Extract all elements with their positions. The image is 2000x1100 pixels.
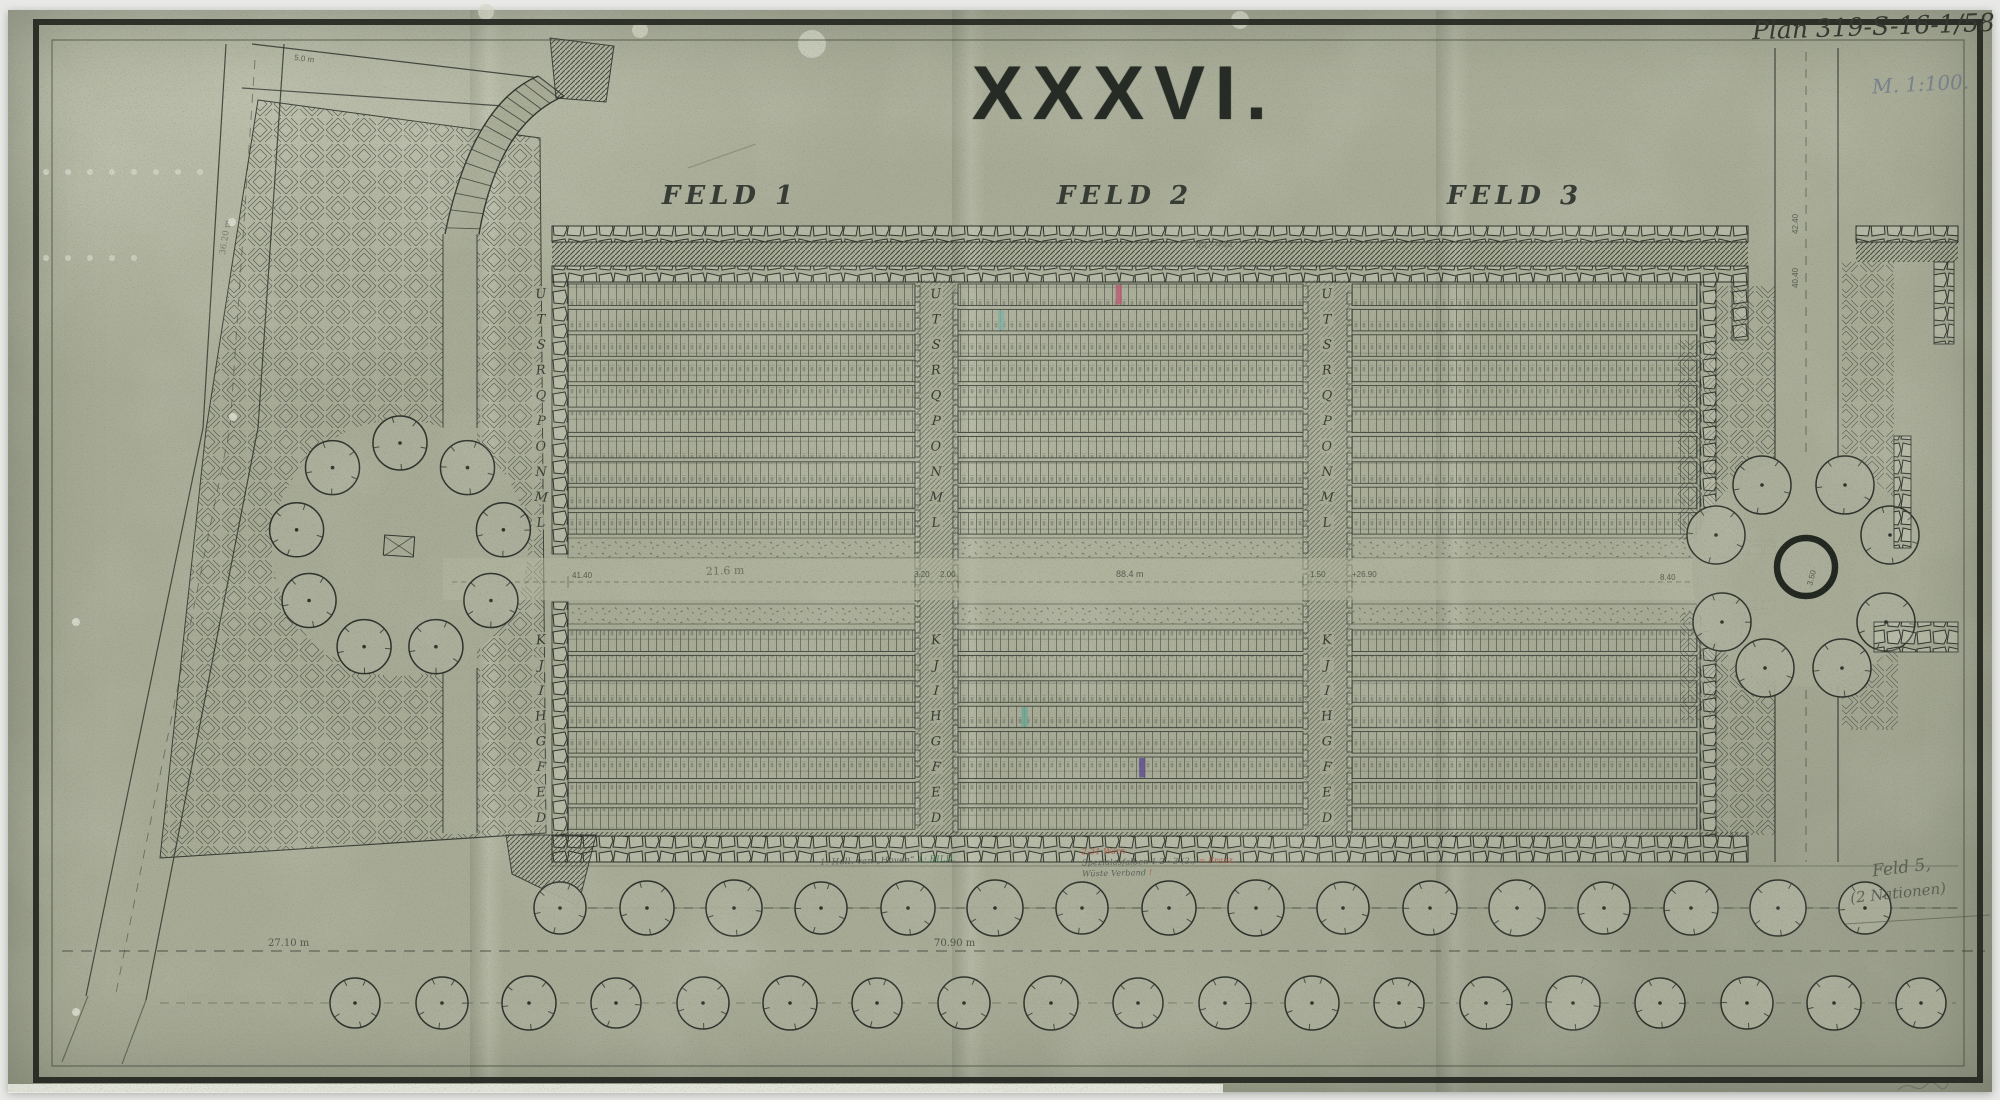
- scanned-plan-sheet: UTSRQPONMLKJIHGFEDUTSRQPONMLKJIHGFEDUTSR…: [0, 0, 2000, 1100]
- paper-texture: [8, 10, 1992, 1092]
- plan-drawing: UTSRQPONMLKJIHGFEDUTSRQPONMLKJIHGFEDUTSR…: [0, 0, 2000, 1100]
